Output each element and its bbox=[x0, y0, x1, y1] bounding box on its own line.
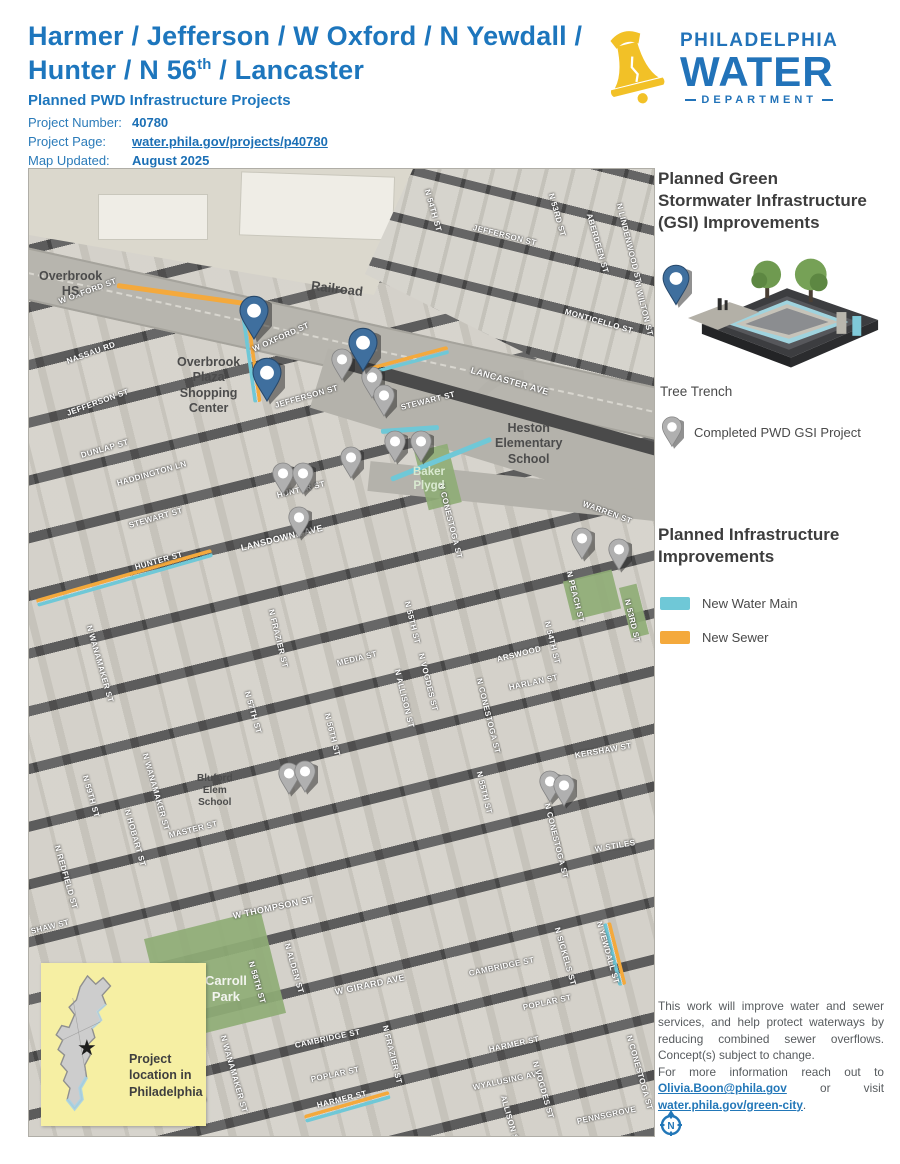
sewer-legend-row: New Sewer bbox=[660, 630, 768, 645]
place-label: Heston Elementary School bbox=[495, 421, 562, 467]
meta-value: August 2025 bbox=[132, 153, 209, 168]
sewer-label: New Sewer bbox=[702, 630, 768, 645]
meta-row: Map Updated:August 2025 bbox=[28, 153, 328, 168]
contact-email-link[interactable]: Olivia.Boon@phila.gov bbox=[658, 1081, 787, 1095]
tree-trench-illustration bbox=[688, 254, 886, 384]
north-arrow-icon: N bbox=[658, 1110, 684, 1138]
svg-text:N: N bbox=[667, 1121, 674, 1132]
completed-gsi-pin bbox=[382, 430, 408, 465]
project-meta: Project Number:40780Project Page:water.p… bbox=[28, 115, 328, 172]
building-block bbox=[99, 195, 207, 239]
completed-gsi-pin bbox=[551, 774, 577, 809]
pwd-project-map-page: Harmer / Jefferson / W Oxford / N Yewdal… bbox=[0, 0, 900, 1164]
completed-gsi-pin bbox=[290, 462, 316, 497]
legend-panel: Planned Green Stormwater Infrastructure … bbox=[658, 168, 886, 1158]
place-label: Baker Plygd bbox=[413, 465, 445, 493]
building-block bbox=[240, 172, 394, 239]
meta-row: Project Number:40780 bbox=[28, 115, 328, 130]
gsi-heading: Planned Green Stormwater Infrastructure … bbox=[658, 168, 873, 233]
completed-gsi-pin bbox=[286, 506, 312, 541]
place-label: Overbrook HS bbox=[39, 269, 102, 300]
place-label: Bluford Elem School bbox=[197, 773, 233, 810]
completed-gsi-pin bbox=[338, 446, 364, 481]
water-main-swatch bbox=[660, 597, 690, 610]
pwd-logo: PHILADELPHIA WATER DEPARTMENT bbox=[596, 22, 886, 114]
water-main-legend-row: New Water Main bbox=[660, 596, 798, 611]
title-line-2: Hunter / N 56th / Lancaster bbox=[28, 55, 364, 85]
planned-gsi-pin bbox=[236, 295, 272, 343]
contact-text: For more information reach out to Olivia… bbox=[658, 1064, 884, 1113]
philadelphia-locator-inset: ★ Project location in Philadelphia bbox=[41, 963, 206, 1126]
meta-value: 40780 bbox=[132, 115, 168, 130]
liberty-bell-icon bbox=[596, 22, 670, 114]
planned-gsi-pin bbox=[249, 357, 285, 405]
completed-gsi-pin bbox=[371, 384, 397, 419]
infrastructure-heading: Planned Infrastructure Improvements bbox=[658, 524, 868, 568]
logo-department: DEPARTMENT bbox=[680, 94, 838, 106]
sewer-swatch bbox=[660, 631, 690, 644]
completed-gsi-pin-icon bbox=[660, 416, 684, 448]
project-location-star: ★ bbox=[77, 1037, 97, 1059]
completed-gsi-pin bbox=[292, 760, 318, 795]
completed-gsi-legend-row: Completed PWD GSI Project bbox=[660, 416, 861, 448]
title-line-1: Harmer / Jefferson / W Oxford / N Yewdal… bbox=[28, 21, 582, 51]
meta-label: Map Updated: bbox=[28, 153, 132, 168]
project-page-link[interactable]: water.phila.gov/projects/p40780 bbox=[132, 134, 328, 149]
page-subtitle: Planned PWD Infrastructure Projects bbox=[28, 92, 291, 109]
disclaimer-text: This work will improve water and sewer s… bbox=[658, 998, 884, 1063]
project-map: W OXFORD STNASSAU RDJEFFERSON STDUNLAP S… bbox=[28, 168, 655, 1137]
place-label: Carroll Park bbox=[205, 973, 247, 1005]
meta-label: Project Page: bbox=[28, 134, 132, 149]
meta-row: Project Page:water.phila.gov/projects/p4… bbox=[28, 134, 328, 149]
pwd-logo-text: PHILADELPHIA WATER DEPARTMENT bbox=[680, 30, 838, 106]
meta-label: Project Number: bbox=[28, 115, 132, 130]
completed-gsi-label: Completed PWD GSI Project bbox=[694, 425, 861, 440]
page-title: Harmer / Jefferson / W Oxford / N Yewdal… bbox=[28, 20, 588, 88]
place-label: Overbrook Plaza Shopping Center bbox=[177, 355, 240, 416]
tree-trench-label: Tree Trench bbox=[660, 384, 732, 399]
logo-water: WATER bbox=[680, 52, 838, 92]
completed-gsi-pin bbox=[569, 527, 595, 562]
completed-gsi-pin bbox=[606, 538, 632, 573]
planned-gsi-pin-icon bbox=[660, 264, 692, 306]
water-main-label: New Water Main bbox=[702, 596, 798, 611]
planned-gsi-pin bbox=[345, 327, 381, 375]
completed-gsi-pin bbox=[408, 430, 434, 465]
inset-caption: Project location in Philadelphia bbox=[129, 1051, 201, 1100]
